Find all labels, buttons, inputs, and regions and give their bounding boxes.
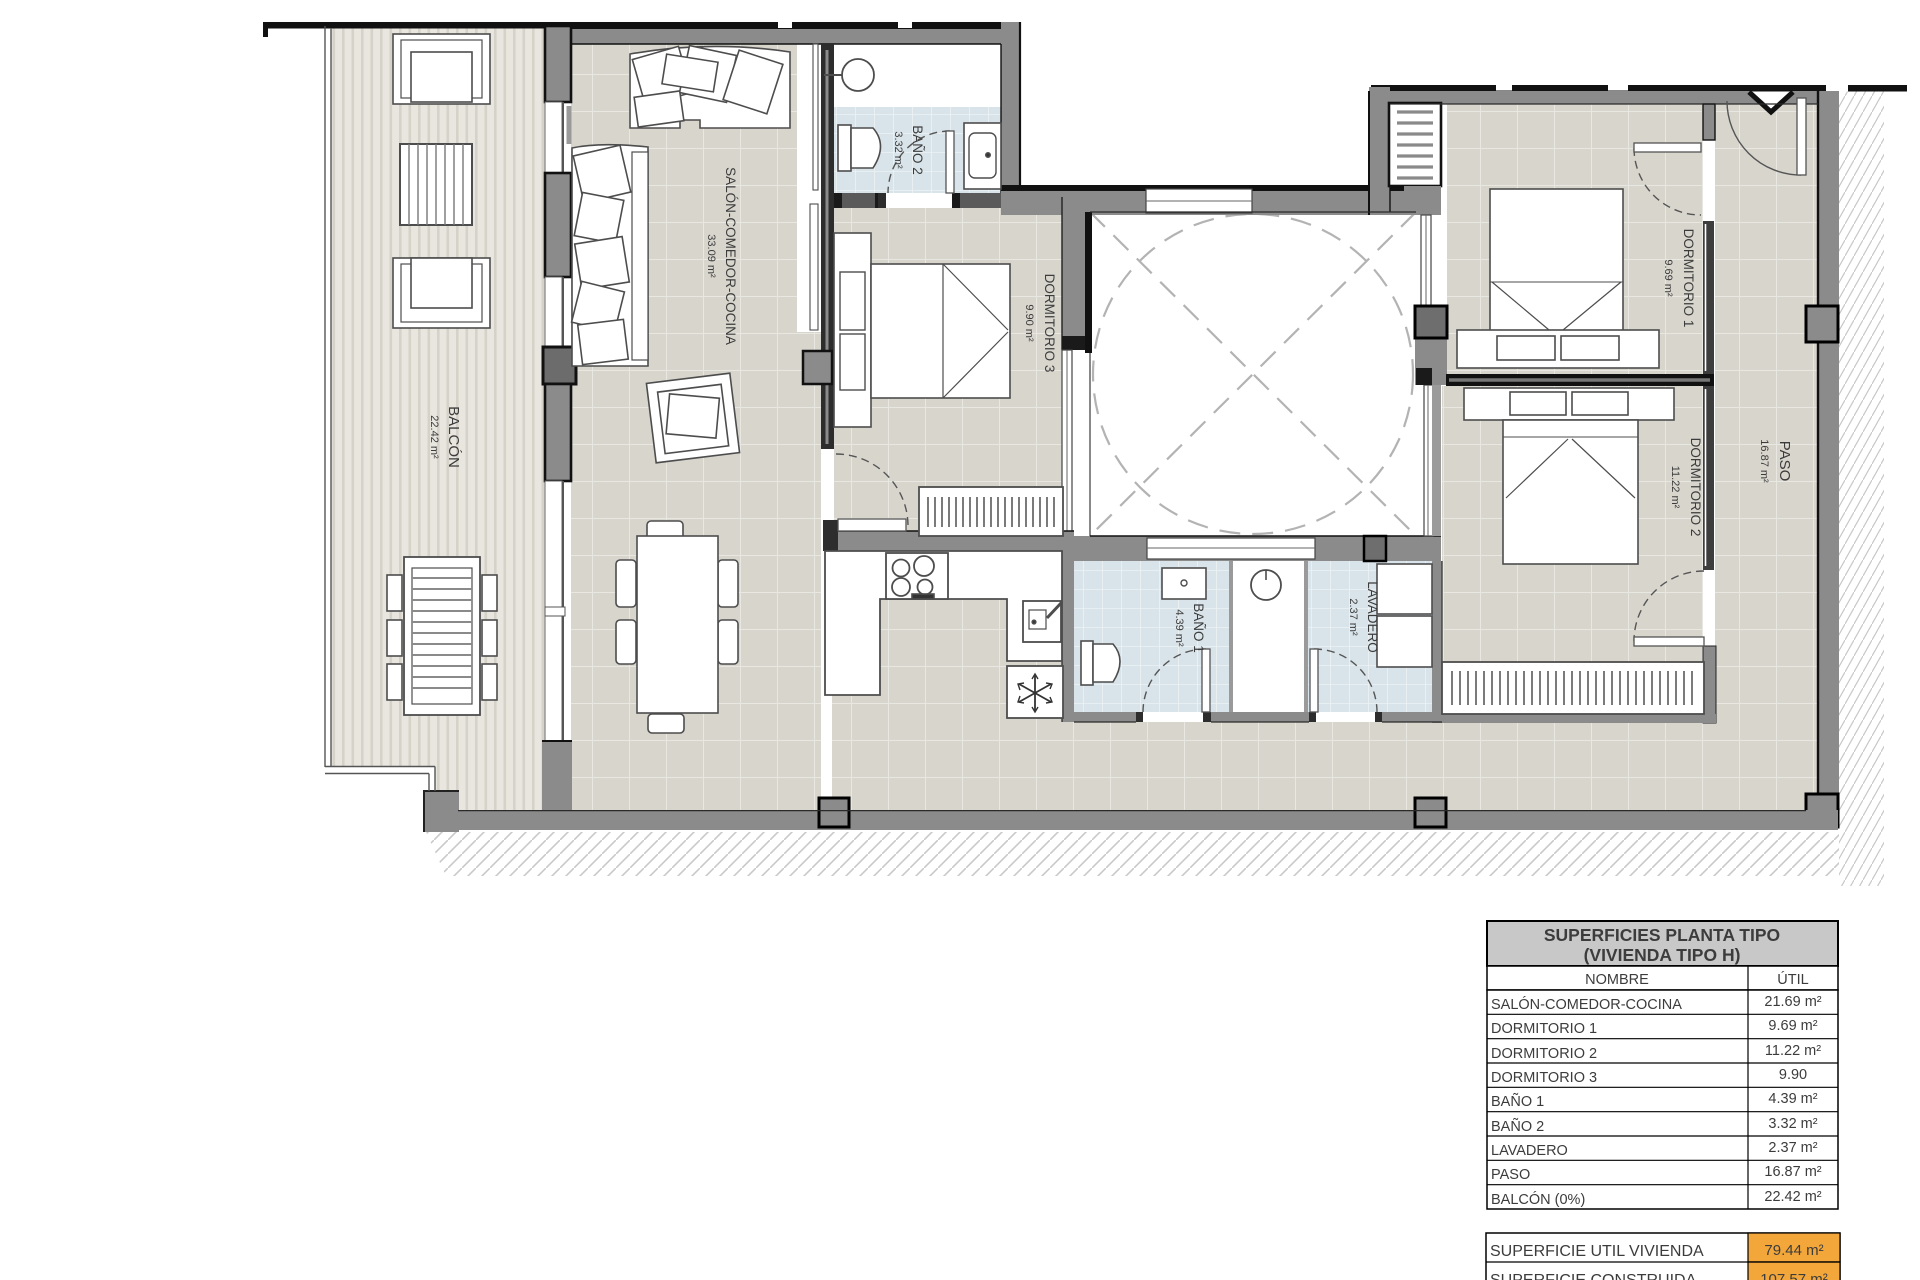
svg-text:DORMITORIO 1: DORMITORIO 1	[1491, 1021, 1597, 1037]
svg-text:BAÑO 1: BAÑO 1	[1491, 1093, 1544, 1110]
svg-text:21.69 m²: 21.69 m²	[1764, 994, 1821, 1010]
svg-text:PASO: PASO	[1491, 1167, 1530, 1183]
svg-text:4.39 m²: 4.39 m²	[1768, 1091, 1817, 1107]
svg-text:11.22 m²: 11.22 m²	[1765, 1043, 1821, 1059]
svg-text:9.90: 9.90	[1779, 1067, 1807, 1083]
svg-text:107.57 m²: 107.57 m²	[1760, 1271, 1828, 1280]
svg-text:NOMBRE: NOMBRE	[1585, 972, 1649, 988]
svg-text:SUPERFICIES PLANTA TIPO: SUPERFICIES PLANTA TIPO	[1544, 925, 1780, 945]
svg-text:22.42 m²: 22.42 m²	[1764, 1189, 1821, 1205]
svg-text:16.87 m²: 16.87 m²	[1764, 1164, 1821, 1180]
svg-text:BALCÓN (0%): BALCÓN (0%)	[1491, 1191, 1585, 1208]
svg-text:9.69 m²: 9.69 m²	[1768, 1018, 1817, 1034]
svg-text:ÚTIL: ÚTIL	[1777, 971, 1808, 988]
svg-text:DORMITORIO 2: DORMITORIO 2	[1491, 1046, 1597, 1062]
svg-text:SUPERFICIE UTIL VIVIENDA: SUPERFICIE UTIL VIVIENDA	[1490, 1243, 1704, 1260]
svg-text:2.37 m²: 2.37 m²	[1768, 1140, 1817, 1156]
svg-text:BAÑO 2: BAÑO 2	[1491, 1118, 1544, 1135]
svg-text:SUPERFICIE CONSTRUIDA: SUPERFICIE CONSTRUIDA	[1490, 1272, 1697, 1280]
svg-text:DORMITORIO 3: DORMITORIO 3	[1491, 1070, 1597, 1086]
svg-text:79.44 m²: 79.44 m²	[1764, 1242, 1823, 1259]
svg-text:(VIVIENDA TIPO H): (VIVIENDA TIPO H)	[1584, 945, 1741, 965]
svg-text:3.32 m²: 3.32 m²	[1768, 1116, 1817, 1132]
svg-text:LAVADERO: LAVADERO	[1491, 1143, 1568, 1159]
svg-text:SALÓN-COMEDOR-COCINA: SALÓN-COMEDOR-COCINA	[1491, 996, 1682, 1013]
